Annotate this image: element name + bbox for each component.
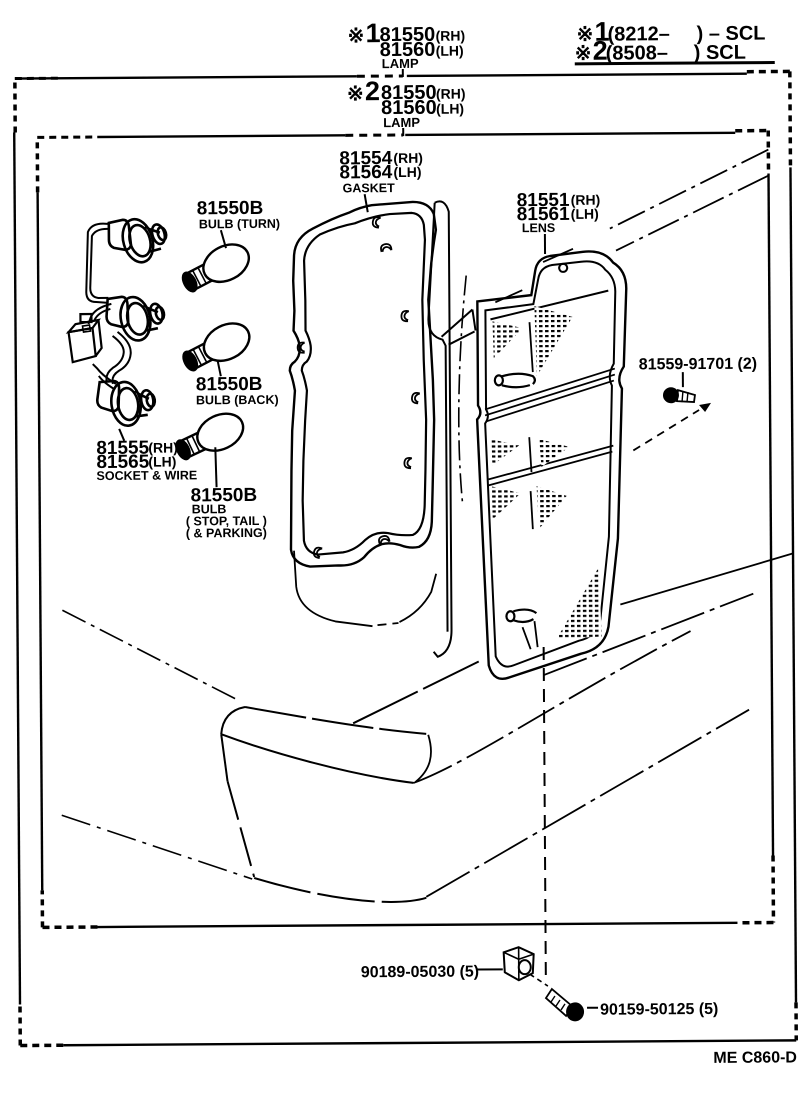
svg-text:2: 2 <box>365 76 380 106</box>
svg-text:(LH): (LH) <box>393 164 421 180</box>
svg-text:(LH): (LH) <box>436 43 464 59</box>
svg-text:LENS: LENS <box>522 221 555 235</box>
svg-text:※: ※ <box>348 25 365 47</box>
svg-text:BULB (BACK): BULB (BACK) <box>196 393 279 408</box>
svg-text:( & PARKING): ( & PARKING) <box>186 526 267 541</box>
svg-text:※: ※ <box>347 83 364 105</box>
svg-text:※: ※ <box>575 43 592 65</box>
svg-text:90159-50125 (5): 90159-50125 (5) <box>600 1001 718 1019</box>
svg-text:LAMP: LAMP <box>382 56 419 71</box>
svg-text:81559-91701 (2): 81559-91701 (2) <box>639 356 757 374</box>
svg-text:SOCKET & WIRE: SOCKET & WIRE <box>96 468 197 483</box>
svg-text:(RH): (RH) <box>436 86 466 102</box>
svg-text:(LH): (LH) <box>571 206 599 222</box>
svg-text:90189-05030 (5): 90189-05030 (5) <box>361 963 479 981</box>
svg-text:) SCL: ) SCL <box>694 42 746 64</box>
svg-text:(LH): (LH) <box>436 101 464 117</box>
svg-text:(RH): (RH) <box>436 28 466 44</box>
svg-text:GASKET: GASKET <box>343 181 396 195</box>
svg-text:ME C860-D: ME C860-D <box>713 1049 797 1067</box>
svg-text:LAMP: LAMP <box>383 115 420 130</box>
svg-text:BULB (TURN): BULB (TURN) <box>199 217 280 232</box>
svg-text:(LH): (LH) <box>148 453 176 469</box>
svg-text:1: 1 <box>365 18 380 48</box>
svg-text:(8508–: (8508– <box>606 42 668 64</box>
